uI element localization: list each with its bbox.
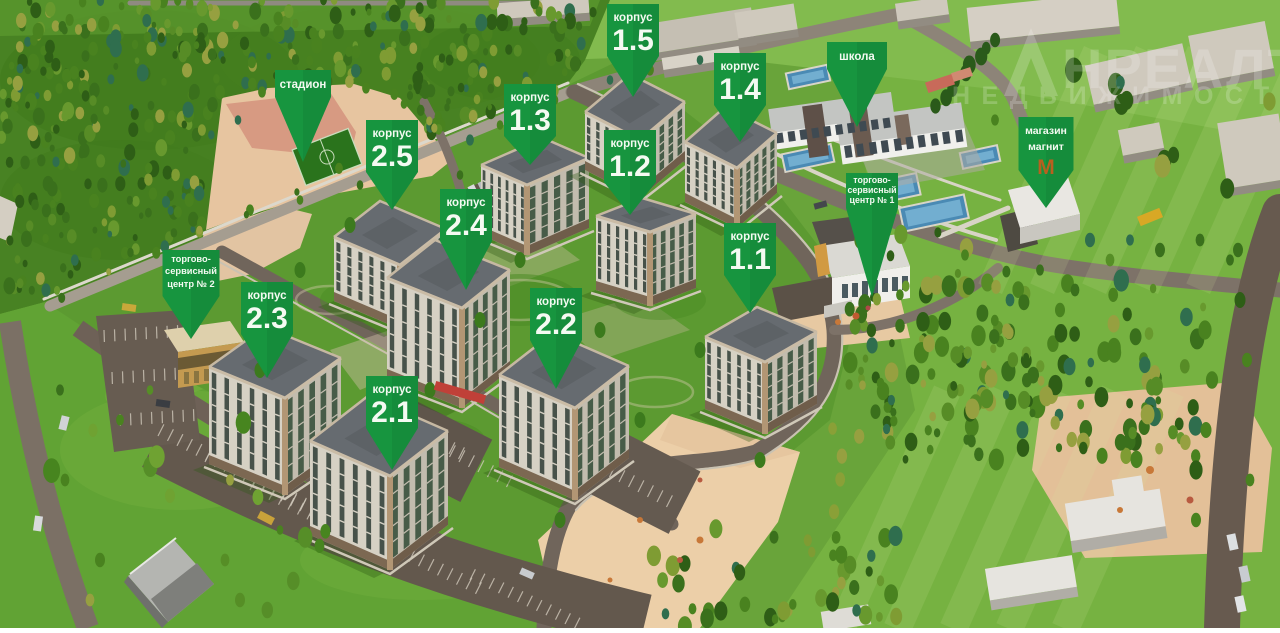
svg-text:торгово-: торгово-: [171, 254, 211, 264]
svg-text:корпус: корпус: [510, 92, 550, 104]
svg-text:корпус: корпус: [446, 197, 486, 209]
svg-text:2.4: 2.4: [445, 209, 487, 242]
svg-text:2.3: 2.3: [246, 302, 288, 335]
svg-text:центр № 2: центр № 2: [167, 279, 214, 289]
svg-text:корпус: корпус: [610, 138, 650, 150]
svg-text:сервисный: сервисный: [847, 185, 896, 195]
svg-text:1.4: 1.4: [719, 73, 761, 106]
svg-text:корпус: корпус: [613, 12, 653, 24]
svg-text:корпус: корпус: [247, 290, 287, 302]
svg-text:магазин: магазин: [1025, 125, 1067, 137]
svg-text:корпус: корпус: [536, 296, 576, 308]
svg-text:М: М: [1037, 156, 1055, 179]
svg-text:корпус: корпус: [372, 128, 412, 140]
svg-text:НЕДВИЖИМОСТЬ: НЕДВИЖИМОСТЬ: [952, 82, 1280, 110]
svg-text:корпус: корпус: [720, 61, 760, 73]
svg-text:1.2: 1.2: [609, 150, 651, 183]
svg-text:1.5: 1.5: [612, 24, 654, 57]
svg-text:корпус: корпус: [730, 231, 770, 243]
svg-text:2.2: 2.2: [535, 308, 577, 341]
svg-text:стадион: стадион: [280, 79, 327, 91]
svg-text:1.3: 1.3: [509, 104, 551, 137]
svg-text:торгово-: торгово-: [853, 175, 891, 185]
svg-text:2.1: 2.1: [371, 396, 413, 429]
svg-text:школа: школа: [839, 51, 875, 63]
svg-text:сервисный: сервисный: [165, 266, 217, 276]
svg-text:магнит: магнит: [1028, 141, 1064, 153]
svg-text:2.5: 2.5: [371, 140, 413, 173]
svg-text:центр № 1: центр № 1: [850, 195, 895, 205]
svg-text:1.1: 1.1: [729, 243, 771, 276]
svg-text:корпус: корпус: [372, 384, 412, 396]
